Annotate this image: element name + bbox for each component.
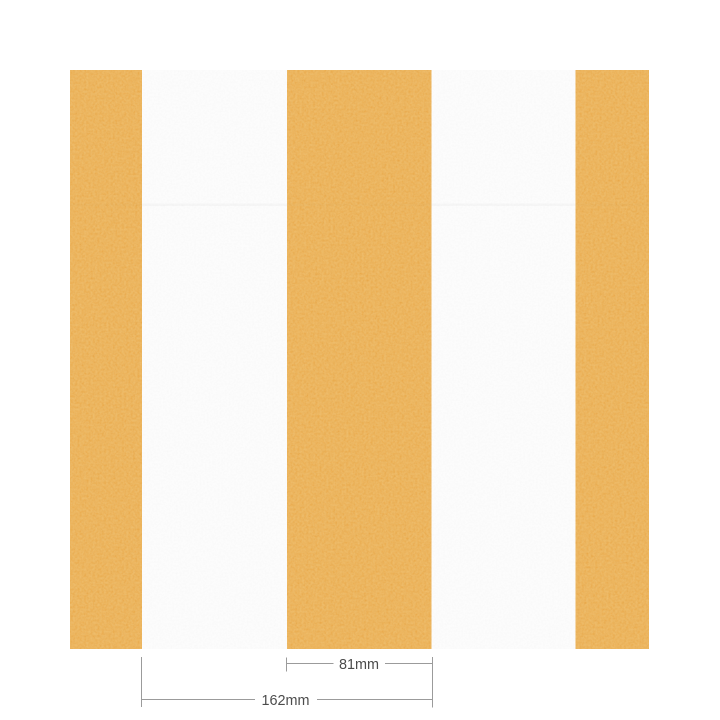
svg-text:162mm: 162mm: [262, 693, 310, 709]
svg-text:81mm: 81mm: [339, 657, 379, 673]
